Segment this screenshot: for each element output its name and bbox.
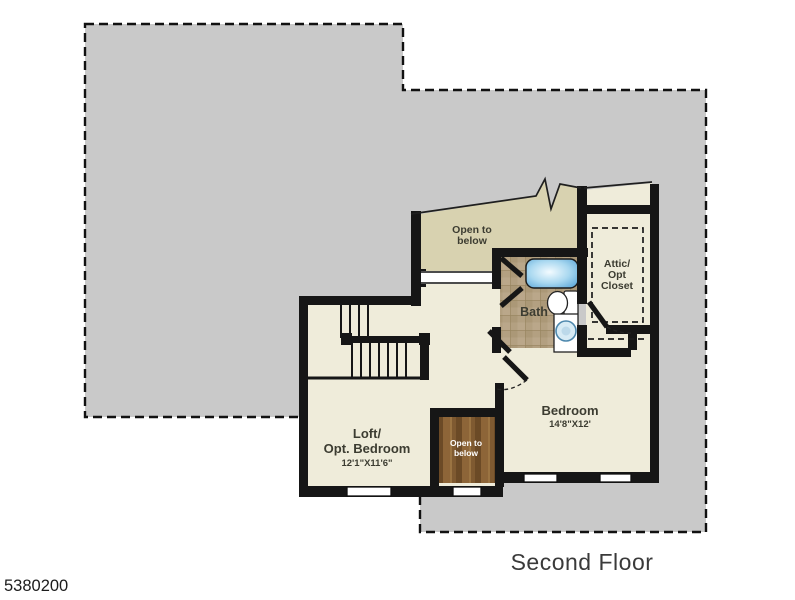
toilet-icon: [548, 291, 579, 315]
stair-newel-left: [341, 333, 352, 345]
floor-title: Second Floor: [511, 549, 654, 575]
wall-bath-top: [492, 248, 588, 257]
window-loft: [347, 487, 391, 496]
wall-bedroom-bottom: [495, 472, 658, 483]
open-below-label-line2: below: [457, 235, 488, 247]
bedroom-dims: 14'8"X12': [549, 419, 591, 430]
wall-attic-top: [581, 205, 658, 214]
sink-vanity-icon: [554, 314, 578, 352]
loft-label-line1: Loft/: [353, 426, 382, 441]
hall-floor-area: [421, 283, 497, 313]
bath-label: Bath: [520, 305, 548, 319]
wall-bedroom-top: [577, 348, 631, 357]
window-bedroom-left: [524, 474, 557, 482]
floorplan-page: Open to below Attic/ Opt Closet Bath Bed…: [0, 0, 795, 600]
stairwell-label-line2: below: [454, 448, 478, 458]
wall-open-below-left: [411, 211, 421, 306]
window-bedroom-right: [600, 474, 631, 482]
open-below-railing: [421, 271, 492, 284]
wall-closet-stub: [628, 332, 637, 350]
wall-bedroom-left: [495, 383, 504, 487]
attic-label-line3: Closet: [601, 280, 634, 292]
bedroom-label: Bedroom: [541, 403, 598, 418]
wall-stairs-top: [299, 296, 421, 305]
wall-stairwell-left: [430, 408, 439, 492]
window-stairwell: [453, 487, 481, 496]
wall-bath-right: [577, 186, 587, 304]
stair-handrail: [343, 336, 429, 343]
listing-id: 5380200: [4, 577, 68, 595]
bathtub-icon: [526, 259, 578, 288]
loft-label-line2: Opt. Bedroom: [324, 441, 411, 456]
wall-stairwell-top: [430, 408, 503, 417]
stair-post-right: [420, 339, 429, 380]
wall-exterior-left: [299, 296, 308, 496]
loft-dims: 12'1"X11'6": [341, 458, 392, 469]
stairwell-labels: Open to below: [450, 438, 482, 458]
wall-bath-left-upper: [492, 248, 501, 289]
stair-risers-lower: [352, 343, 406, 377]
stairwell-label-line1: Open to: [450, 438, 482, 448]
floorplan-drawing: Open to below Attic/ Opt Closet Bath Bed…: [0, 0, 795, 600]
